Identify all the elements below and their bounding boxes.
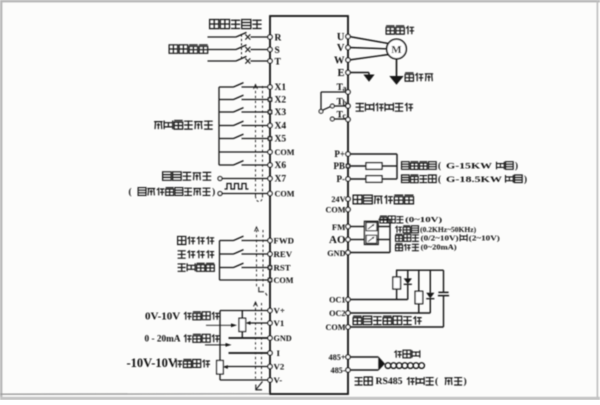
svg-text:G-18.5KW: G-18.5KW — [446, 174, 503, 184]
svg-text:E: E — [337, 68, 344, 79]
svg-text:(0.2KHz~50KHz): (0.2KHz~50KHz) — [420, 226, 477, 234]
svg-text:RS485: RS485 — [376, 376, 403, 386]
svg-text:COM: COM — [274, 276, 294, 285]
svg-text:X1: X1 — [275, 83, 287, 93]
svg-text:COM: COM — [275, 148, 295, 157]
svg-text:a: a — [343, 84, 347, 93]
svg-text:(0~10V): (0~10V) — [405, 216, 443, 224]
svg-text:COM: COM — [275, 190, 295, 199]
svg-text:485-: 485- — [330, 366, 345, 375]
svg-text:FWD: FWD — [274, 236, 295, 246]
svg-text:c: c — [343, 112, 347, 121]
svg-text:V+: V+ — [274, 306, 285, 316]
svg-text:COM: COM — [325, 206, 345, 215]
svg-text:RST: RST — [274, 263, 291, 273]
svg-text:G-15KW: G-15KW — [446, 161, 493, 171]
svg-text:X2: X2 — [275, 96, 287, 106]
svg-text:W: W — [334, 56, 345, 67]
svg-text:X5: X5 — [275, 135, 287, 145]
svg-text:(: ( — [129, 187, 132, 197]
svg-text:OC2: OC2 — [329, 309, 345, 318]
svg-text:(: ( — [438, 161, 441, 171]
svg-text:b: b — [343, 99, 348, 108]
svg-text:PB: PB — [333, 161, 345, 171]
svg-text:(: ( — [438, 174, 441, 184]
svg-text:): ) — [212, 187, 215, 197]
svg-text:FM: FM — [332, 222, 346, 232]
svg-text:M: M — [391, 44, 402, 56]
svg-text:T: T — [275, 57, 282, 67]
svg-text:(: ( — [435, 376, 438, 387]
svg-text:X3: X3 — [275, 108, 287, 118]
svg-text:I: I — [277, 348, 281, 358]
svg-text:GND: GND — [274, 334, 292, 343]
svg-text:0 - 20mA: 0 - 20mA — [145, 334, 181, 344]
svg-text:(2~10V): (2~10V) — [469, 234, 501, 242]
svg-text:485+: 485+ — [329, 353, 346, 362]
svg-text:AO: AO — [329, 234, 346, 246]
svg-text:-10V-10V: -10V-10V — [127, 356, 177, 370]
svg-text:OC1: OC1 — [329, 296, 345, 305]
svg-text:P-: P- — [337, 174, 346, 184]
svg-text:24V: 24V — [331, 195, 345, 204]
svg-text:X4: X4 — [275, 122, 287, 132]
svg-text:REV: REV — [274, 249, 293, 259]
svg-text:): ) — [464, 376, 467, 387]
svg-text:(0~20mA): (0~20mA) — [421, 244, 458, 252]
svg-text:V: V — [337, 43, 345, 54]
svg-text:V-: V- — [274, 375, 283, 385]
svg-text:0V-10V: 0V-10V — [145, 310, 180, 322]
svg-text:P+: P+ — [334, 149, 345, 159]
svg-text:U: U — [337, 32, 345, 43]
svg-text:(0/2~10V): (0/2~10V) — [421, 234, 460, 242]
svg-text:R: R — [275, 33, 282, 43]
svg-text:V1: V1 — [274, 318, 285, 328]
svg-text:): ) — [524, 174, 527, 184]
svg-text:X6: X6 — [275, 161, 287, 171]
svg-text:GND: GND — [327, 249, 345, 258]
svg-text:): ) — [515, 161, 518, 171]
svg-text:S: S — [275, 46, 280, 56]
svg-text:X7: X7 — [275, 175, 287, 185]
svg-text:COM: COM — [325, 323, 345, 332]
svg-text:V2: V2 — [274, 362, 285, 372]
